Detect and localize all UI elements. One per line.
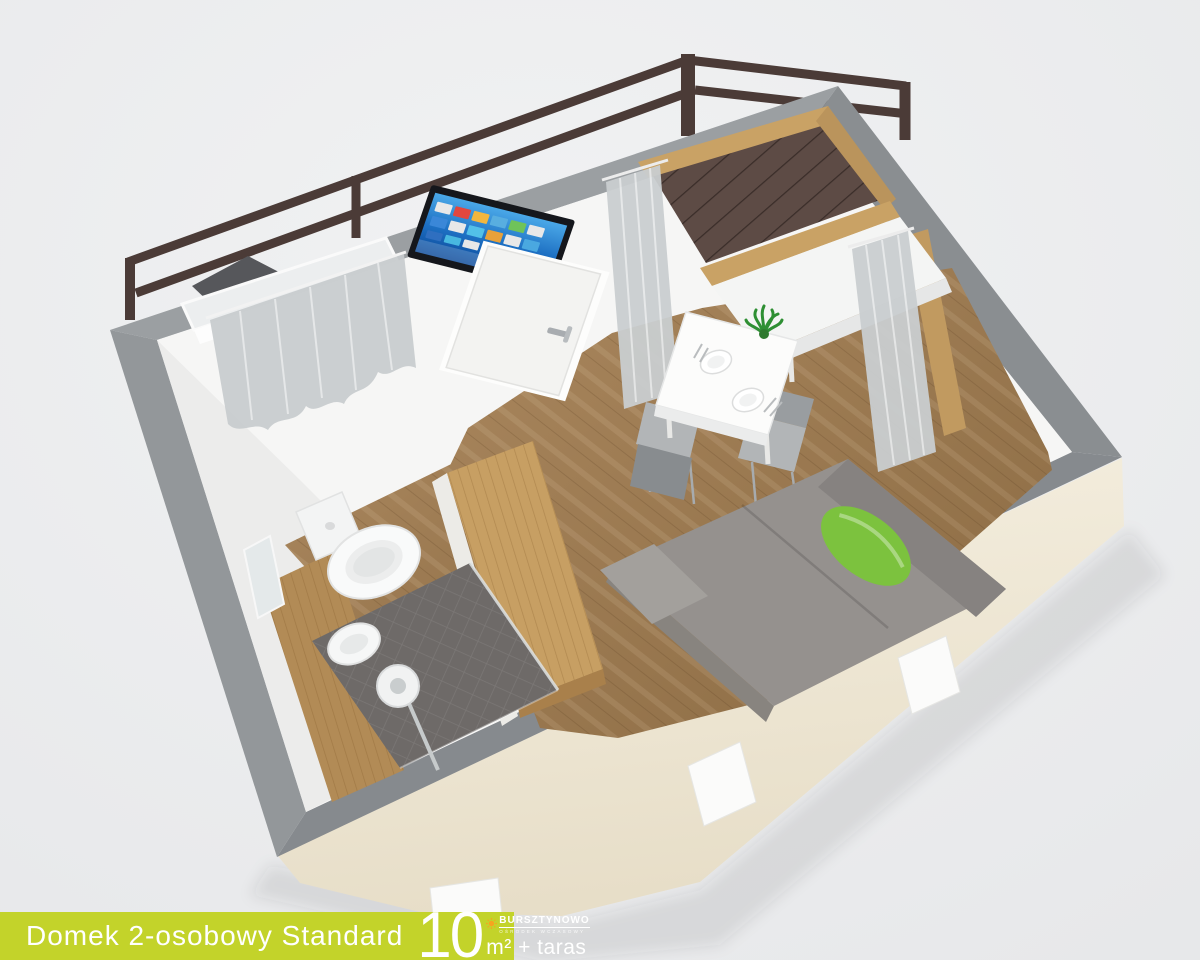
sun-icon <box>486 916 497 927</box>
brand-name: BURSZTYNOWO <box>499 915 589 928</box>
render-stage: Terrace railing Terrace chair Exterior w… <box>0 0 1200 960</box>
cabin-title: Domek 2-osobowy Standard <box>26 920 403 952</box>
area-number: 10 <box>417 913 482 959</box>
area-unit: m² + taras <box>486 936 589 960</box>
brand-logo: BURSZTYNOWO <box>486 915 589 928</box>
caption-bar: Domek 2-osobowy Standard 10 BURSZTYNOWO … <box>0 912 514 960</box>
brand-tagline: OŚRODEK WCZASOWY <box>499 929 589 934</box>
scene-svg: Terrace railing Terrace chair Exterior w… <box>0 0 1200 960</box>
